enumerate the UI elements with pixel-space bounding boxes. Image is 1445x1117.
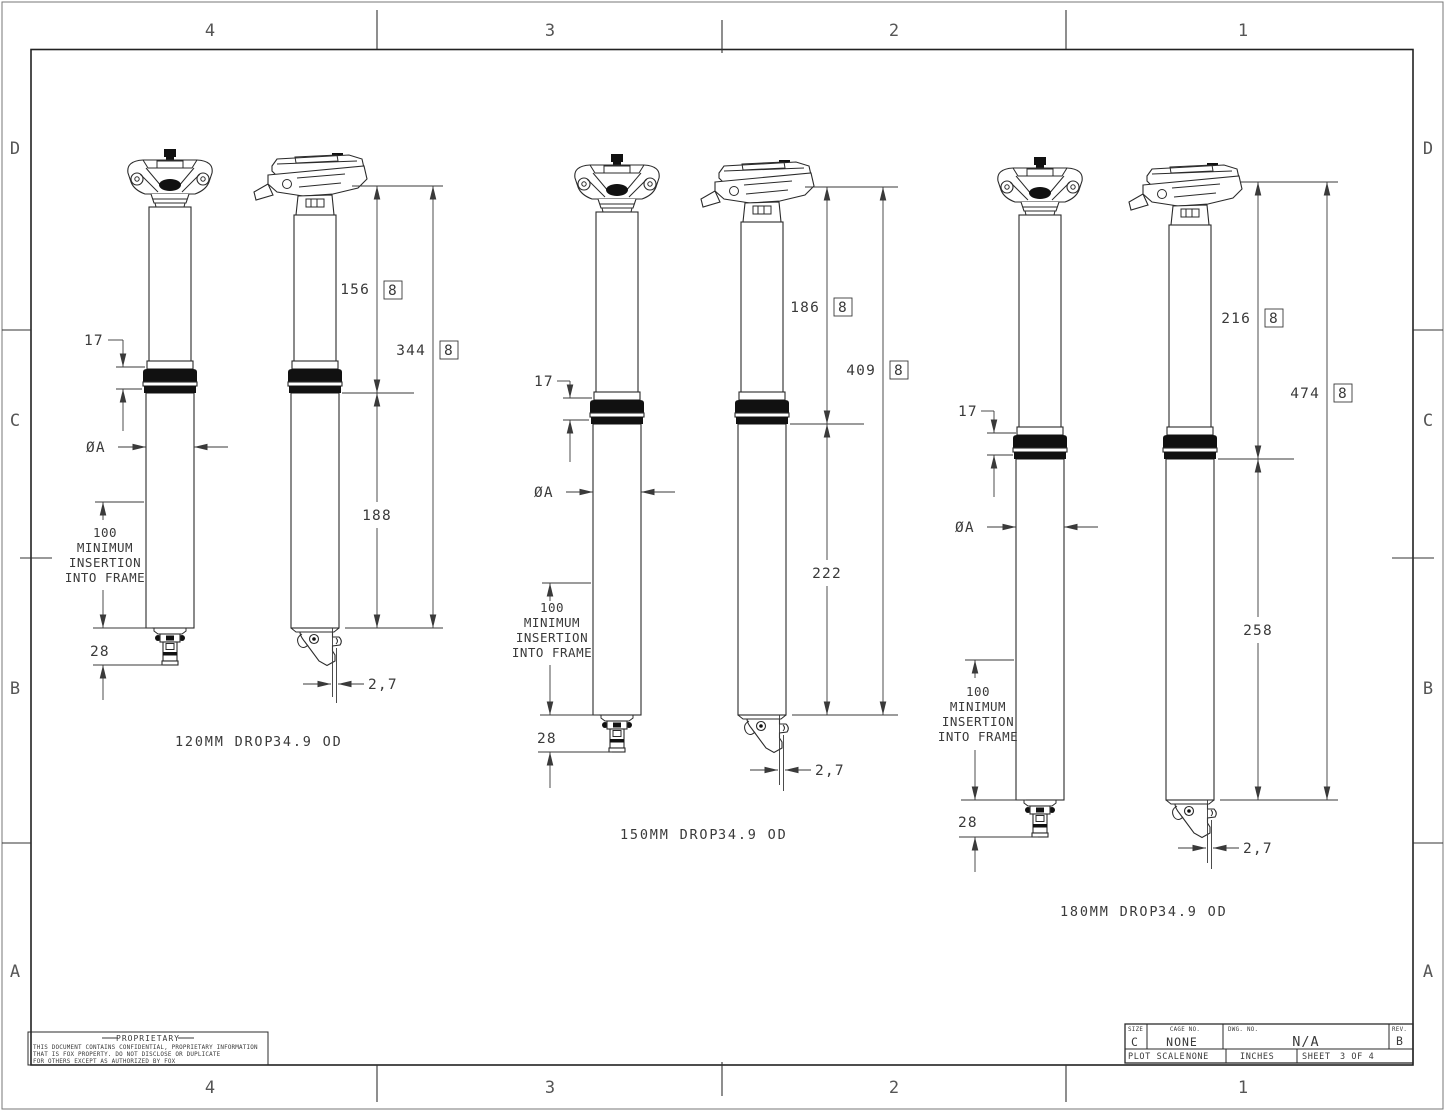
zone-ticks-right	[1392, 330, 1443, 843]
proprietary-line2: THAT IS FOX PROPERTY. DO NOT DISCLOSE OR…	[33, 1052, 221, 1058]
dim-diameter-label: ØA	[86, 440, 106, 456]
proprietary-heading: PROPRIETARY	[116, 1034, 180, 1043]
zone-label-bottom-2: 2	[889, 1078, 899, 1098]
dim-collar-height: 17	[534, 374, 554, 390]
dim-collar-height: 17	[84, 333, 104, 349]
dim-total-length: 344	[396, 343, 426, 359]
zone-label-bottom-4: 4	[205, 1078, 215, 1098]
dim-lower-length: 222	[812, 566, 842, 582]
proprietary-note: PROPRIETARY THIS DOCUMENT CONTAINS CONFI…	[28, 1032, 268, 1065]
svg-text:INSERTION: INSERTION	[69, 555, 141, 570]
dim-upper-length: 156	[340, 282, 370, 298]
caption-od: 34.9 OD	[1158, 904, 1228, 920]
svg-text:100: 100	[540, 600, 564, 615]
dim-actuator-length: 28	[90, 644, 110, 660]
zone-label-right-d: D	[1423, 139, 1433, 159]
note-min-insertion: 100 MINIMUM INSERTION INTO FRAME	[65, 525, 145, 585]
svg-text:100: 100	[966, 684, 990, 699]
size-value: C	[1131, 1035, 1139, 1049]
svg-text:MINIMUM: MINIMUM	[950, 699, 1006, 714]
zone-label-top-1: 1	[1238, 21, 1248, 41]
zone-label-left-b: B	[10, 679, 20, 699]
size-label: SIZE	[1128, 1027, 1143, 1033]
dimensions-150mm: 186 8 409 8 222 17 ØA 100 MINIMUM INSERT…	[512, 187, 908, 843]
dwg-label: DWG. NO.	[1228, 1027, 1258, 1033]
zone-label-bottom-1: 1	[1238, 1078, 1248, 1098]
note-min-insertion: 100 MINIMUM INSERTION INTO FRAME	[938, 684, 1018, 744]
rev-label: REV.	[1392, 1027, 1407, 1033]
dim-actuator-length: 28	[537, 731, 557, 747]
caption-drop: 120MM DROP	[175, 734, 274, 750]
svg-text:INTO FRAME: INTO FRAME	[938, 729, 1018, 744]
title-block: SIZE C CAGE NO. NONE DWG. NO. N/A REV. B…	[1125, 1024, 1413, 1063]
zone-label-left-d: D	[10, 139, 20, 159]
proprietary-line3: FOR OTHERS EXCEPT AS AUTHORIZED BY FOX	[33, 1059, 176, 1065]
svg-text:INSERTION: INSERTION	[516, 630, 588, 645]
zone-label-top-3: 3	[545, 21, 555, 41]
dim-diameter-label: ØA	[534, 485, 554, 501]
zone-label-left-c: C	[10, 411, 20, 431]
svg-text:MINIMUM: MINIMUM	[77, 540, 133, 555]
flag-note-8: 8	[838, 300, 848, 316]
dim-diameter-label: ØA	[955, 520, 975, 536]
dim-upper-length: 186	[790, 300, 820, 316]
zone-ticks-left	[2, 330, 52, 843]
drawing-sheet: 4 3 2 1 4 3 2 1 D C B A D C B A 156 8 34…	[0, 0, 1445, 1117]
flag-note-8: 8	[444, 343, 454, 359]
svg-text:INTO FRAME: INTO FRAME	[512, 645, 592, 660]
dwg-value: N/A	[1292, 1034, 1319, 1050]
rev-value: B	[1396, 1034, 1404, 1048]
plot-scale-value: NONE	[1186, 1052, 1209, 1062]
caption-od: 34.9 OD	[273, 734, 343, 750]
cage-label: CAGE NO.	[1170, 1027, 1200, 1033]
svg-text:INSERTION: INSERTION	[942, 714, 1014, 729]
dim-actuator-length: 28	[958, 815, 978, 831]
zone-label-top-4: 4	[205, 21, 215, 41]
zone-ticks-bottom	[377, 1062, 1066, 1102]
dim-upper-length: 216	[1221, 311, 1251, 327]
dim-offset: 2,7	[815, 763, 845, 779]
zone-label-right-a: A	[1423, 962, 1433, 982]
dimensions-120mm: 156 8 344 8 188 17 ØA 100 MINIMUM INSERT…	[65, 186, 458, 750]
dim-offset: 2,7	[368, 677, 398, 693]
units-value: INCHES	[1240, 1052, 1274, 1062]
flag-note-8: 8	[1269, 311, 1279, 327]
caption-od: 34.9 OD	[718, 827, 788, 843]
view-180mm-side	[1129, 163, 1242, 869]
dim-lower-length: 258	[1243, 623, 1273, 639]
note-min-insertion: 100 MINIMUM INSERTION INTO FRAME	[512, 600, 592, 660]
svg-text:MINIMUM: MINIMUM	[524, 615, 580, 630]
zone-label-right-c: C	[1423, 411, 1433, 431]
dim-lower-length: 188	[362, 508, 392, 524]
dim-total-length: 409	[846, 363, 876, 379]
sheet-label: SHEET	[1302, 1052, 1331, 1062]
view-120mm-side	[254, 153, 367, 703]
zone-label-bottom-3: 3	[545, 1078, 555, 1098]
zone-ticks-top	[377, 10, 1066, 53]
dim-collar-height: 17	[958, 404, 978, 420]
flag-note-8: 8	[1338, 386, 1348, 402]
svg-text:INTO FRAME: INTO FRAME	[65, 570, 145, 585]
flag-note-8: 8	[388, 283, 398, 299]
drawing-canvas: 4 3 2 1 4 3 2 1 D C B A D C B A 156 8 34…	[0, 0, 1445, 1117]
view-120mm-front	[128, 149, 212, 665]
zone-label-left-a: A	[10, 962, 20, 982]
cage-value: NONE	[1166, 1035, 1198, 1049]
caption-drop: 180MM DROP	[1060, 904, 1159, 920]
proprietary-line1: THIS DOCUMENT CONTAINS CONFIDENTIAL, PRO…	[33, 1045, 258, 1051]
dimensions-180mm: 216 8 474 8 258 17 ØA 100 MINIMUM INSERT…	[938, 182, 1352, 920]
flag-note-8: 8	[894, 363, 904, 379]
zone-label-top-2: 2	[889, 21, 899, 41]
dim-offset: 2,7	[1243, 841, 1273, 857]
plot-scale-label: PLOT SCALE	[1128, 1052, 1185, 1062]
view-150mm-front	[575, 154, 659, 752]
caption-drop: 150MM DROP	[620, 827, 719, 843]
dim-total-length: 474	[1290, 386, 1320, 402]
sheet-value: 3 OF 4	[1340, 1052, 1374, 1062]
svg-text:100: 100	[93, 525, 117, 540]
view-150mm-side	[701, 160, 814, 791]
zone-label-right-b: B	[1423, 679, 1433, 699]
